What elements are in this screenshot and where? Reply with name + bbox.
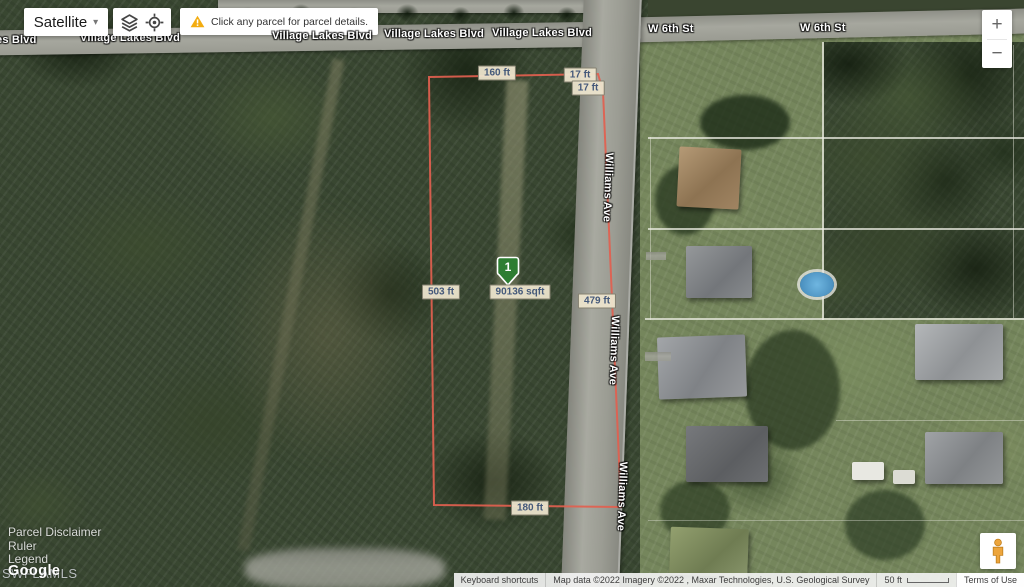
parcel-area-label: 90136 sqft [490, 285, 551, 300]
keyboard-shortcuts-link[interactable]: Keyboard shortcuts [454, 573, 546, 587]
street-label-w6th-1: W 6th St [648, 23, 694, 35]
notice-text: Click any parcel for parcel details. [211, 16, 368, 28]
map-type-label: Satellite [34, 14, 87, 31]
measurement-jog-2: 17 ft [572, 81, 605, 96]
parcel-marker[interactable]: 1 [496, 256, 520, 287]
chevron-down-icon: ▾ [93, 17, 98, 28]
map-viewport[interactable]: 1 160 ft 17 ft 17 ft 503 ft 90136 sqft 4… [0, 0, 1024, 587]
scale-text: 50 ft [884, 575, 902, 585]
google-logo: Google [8, 563, 60, 579]
map-toolbox [113, 8, 171, 36]
zoom-control: + − [982, 10, 1012, 68]
status-bar: Keyboard shortcuts Map data ©2022 Imager… [454, 573, 1024, 587]
street-label-williams-1: Williams Ave [601, 153, 615, 223]
measurement-left: 503 ft [422, 285, 460, 300]
street-label-village-lakes-3: Village Lakes Blvd [384, 28, 484, 40]
measurement-bottom: 180 ft [511, 501, 549, 516]
zoom-out-button[interactable]: − [982, 40, 1012, 69]
measurement-top: 160 ft [478, 66, 516, 81]
street-label-w6th-2: W 6th St [800, 22, 846, 34]
scale-bar [907, 578, 949, 583]
pegman-icon [987, 538, 1009, 564]
parcel-disclaimer-link[interactable]: Parcel Disclaimer [8, 525, 101, 539]
street-label-williams-2: Williams Ave [607, 316, 621, 386]
zoom-in-button[interactable]: + [982, 10, 1012, 39]
scale-indicator: 50 ft [876, 573, 956, 587]
map-type-button[interactable]: Satellite ▾ [24, 8, 108, 36]
street-label-williams-3: Williams Ave [615, 462, 629, 532]
street-label-village-lakes-4: Village Lakes Blvd [492, 27, 592, 39]
terms-of-use-link[interactable]: Terms of Use [956, 573, 1024, 587]
map-attribution: Map data ©2022 Imagery ©2022 , Maxar Tec… [545, 573, 876, 587]
locate-crosshair-icon[interactable] [145, 13, 164, 32]
layers-icon[interactable] [120, 13, 139, 32]
ruler-link[interactable]: Ruler [8, 539, 37, 553]
pegman-button[interactable] [980, 533, 1016, 569]
measurement-right: 479 ft [578, 294, 616, 309]
street-label-village-lakes-2: Village Lakes Blvd [272, 30, 372, 42]
warning-icon [190, 15, 205, 28]
svg-text:1: 1 [505, 260, 512, 274]
